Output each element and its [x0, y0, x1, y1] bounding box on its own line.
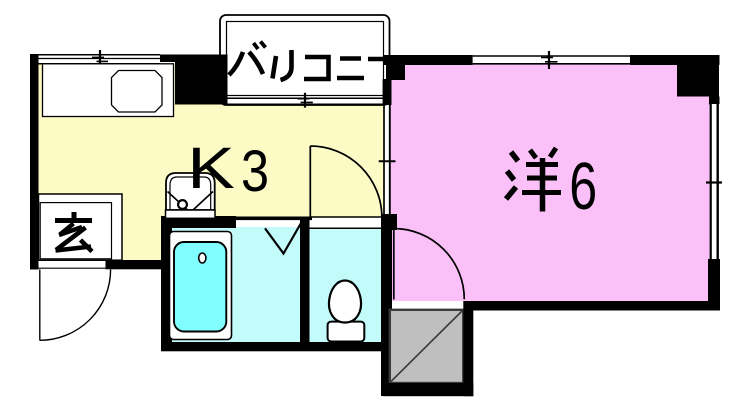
svg-text:6: 6 — [569, 148, 597, 224]
svg-text:3: 3 — [241, 139, 269, 204]
svg-text:K: K — [187, 135, 235, 200]
